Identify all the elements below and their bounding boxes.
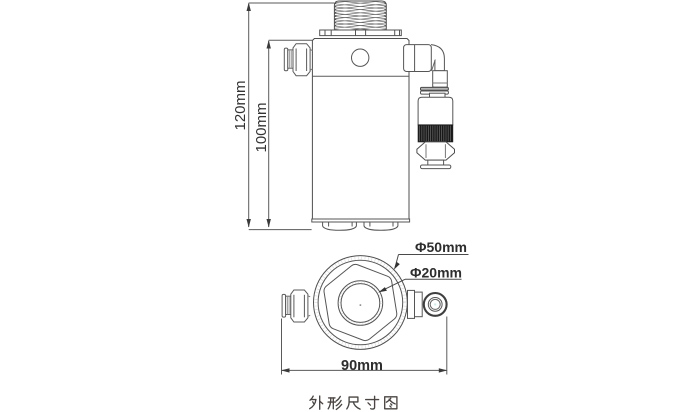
svg-text:100mm: 100mm (253, 102, 270, 152)
svg-text:90mm: 90mm (341, 358, 383, 374)
svg-text:Φ50mm: Φ50mm (415, 239, 467, 255)
svg-text:120mm: 120mm (232, 80, 249, 130)
svg-text:Φ20mm: Φ20mm (410, 265, 462, 281)
